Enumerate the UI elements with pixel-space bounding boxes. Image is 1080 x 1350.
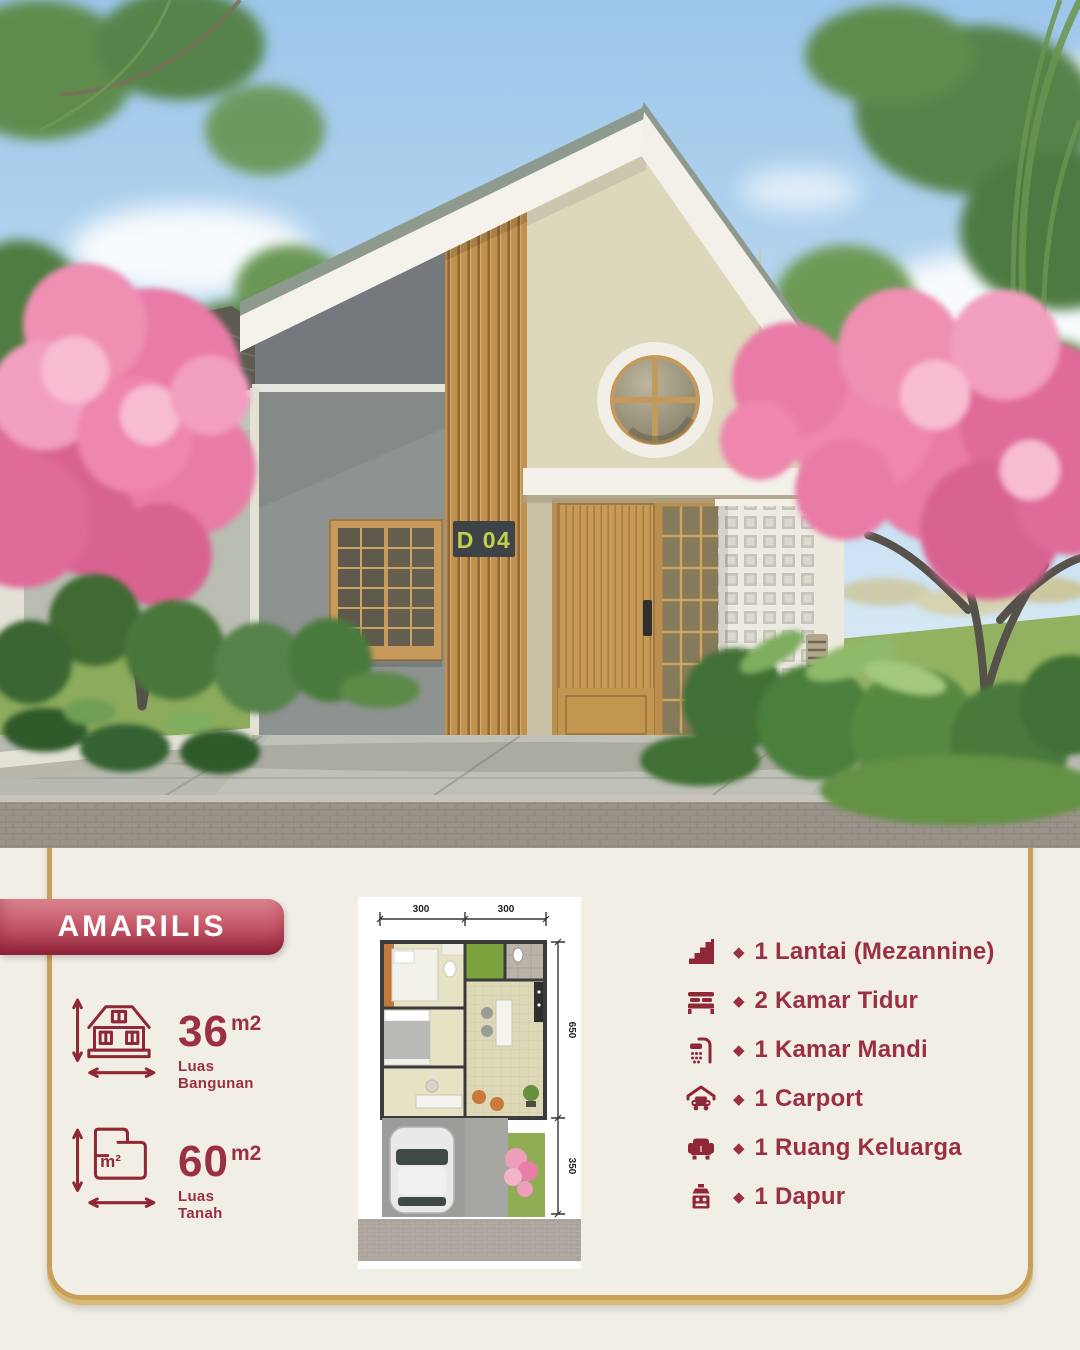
stairs-icon (686, 937, 716, 967)
house-render-photo: D 04 (0, 0, 1080, 848)
project-name-badge: AMARILIS (0, 899, 284, 955)
feature-lantai: ◆ 1 Lantai (Mezannine) (686, 936, 995, 967)
feature-text: 1 Kamar Mandi (755, 1036, 928, 1064)
feature-text: 1 Ruang Keluarga (755, 1134, 962, 1162)
building-area-label: Luas Bangunan (178, 1058, 261, 1093)
building-area-value: 36 (178, 1007, 229, 1056)
bed-icon (686, 986, 716, 1016)
land-area-value-row: 60m2 (178, 1140, 261, 1184)
feature-ruang-keluarga: ◆ 1 Ruang Keluarga (686, 1132, 995, 1163)
building-area-icon (70, 986, 168, 1084)
house-number: D 04 (457, 527, 512, 553)
stove-icon (686, 1182, 716, 1212)
feature-dapur: ◆ 1 Dapur (686, 1181, 995, 1212)
shower-icon (686, 1035, 716, 1065)
building-area-value-row: 36m2 (178, 1010, 261, 1054)
plan-dim-top-left: 300 (413, 904, 430, 915)
plan-dim-top-right: 300 (498, 904, 515, 915)
feature-bullet: ◆ (733, 992, 745, 1010)
wood-slat-panel (445, 208, 527, 755)
door-lock (643, 600, 652, 636)
feature-bullet: ◆ (733, 943, 745, 961)
land-area-value: 60 (178, 1137, 229, 1186)
building-area-spec: 36m2 Luas Bangunan (70, 986, 261, 1093)
plan-dim-side-upper: 650 (566, 1022, 577, 1039)
building-area-unit: m2 (231, 1012, 261, 1035)
feature-text: 1 Dapur (755, 1183, 846, 1211)
sofa-icon (686, 1133, 716, 1163)
land-area-icon: m² (70, 1116, 168, 1214)
flyer-canvas: D 04 (0, 0, 1080, 1350)
floor-plan-card: 300 300 (358, 897, 581, 1269)
feature-kamar-mandi: ◆ 1 Kamar Mandi (686, 1034, 995, 1065)
floor-plan: 300 300 (358, 897, 581, 1269)
land-area-spec: m² 60m2 Luas Tanah (70, 1116, 261, 1223)
land-area-label: Luas Tanah (178, 1188, 261, 1223)
features-list: ◆ 1 Lantai (Mezannine) ◆ 2 Kamar Tidur (686, 936, 995, 1230)
feature-bullet: ◆ (733, 1188, 745, 1206)
plan-dim-side-lower: 350 (566, 1158, 577, 1175)
carport-icon (686, 1084, 716, 1114)
land-area-icon-label: m² (100, 1152, 121, 1171)
feature-bullet: ◆ (733, 1139, 745, 1157)
feature-kamar-tidur: ◆ 2 Kamar Tidur (686, 985, 995, 1016)
plan-car (390, 1127, 454, 1213)
feature-text: 1 Carport (755, 1085, 864, 1113)
house-number-plaque: D 04 (453, 521, 515, 557)
project-name: AMARILIS (58, 910, 227, 944)
feature-text: 2 Kamar Tidur (755, 987, 919, 1015)
land-area-unit: m2 (231, 1142, 261, 1165)
feature-bullet: ◆ (733, 1041, 745, 1059)
feature-bullet: ◆ (733, 1090, 745, 1108)
feature-text: 1 Lantai (Mezannine) (755, 938, 995, 966)
round-window (597, 342, 713, 458)
feature-carport: ◆ 1 Carport (686, 1083, 995, 1114)
